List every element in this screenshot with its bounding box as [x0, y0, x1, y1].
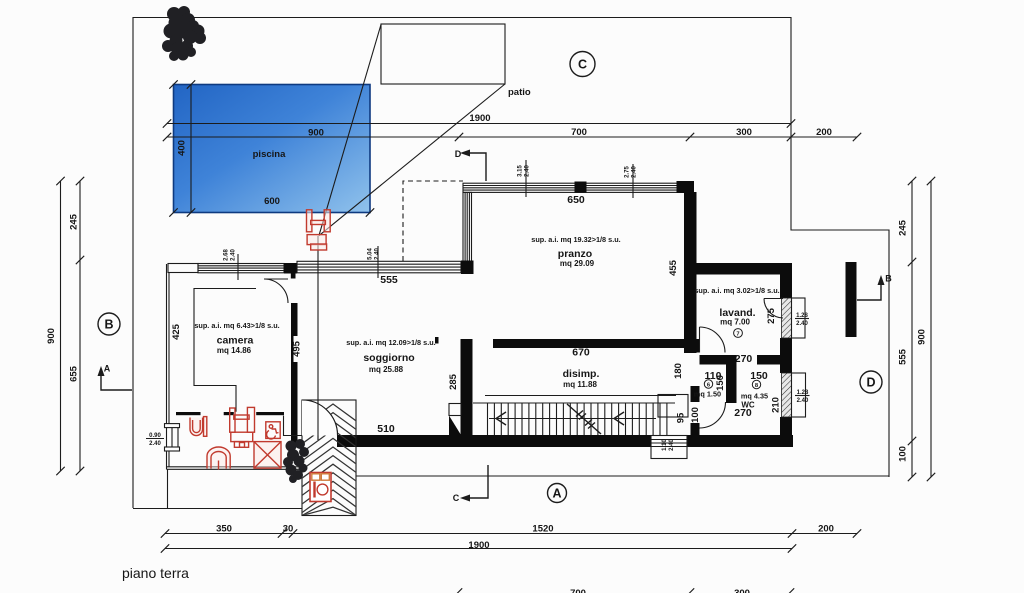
svg-text:piscina: piscina [253, 149, 286, 160]
svg-text:2.40: 2.40 [796, 321, 808, 327]
svg-text:1.10: 1.10 [662, 439, 668, 451]
svg-text:0.90: 0.90 [149, 433, 161, 439]
svg-text:900: 900 [308, 128, 324, 139]
svg-text:camera: camera [217, 335, 254, 347]
svg-text:2.40: 2.40 [231, 249, 237, 261]
svg-text:1.28: 1.28 [797, 390, 809, 396]
svg-text:300: 300 [734, 588, 750, 593]
svg-text:1520: 1520 [532, 524, 553, 535]
svg-text:C: C [453, 493, 460, 503]
svg-text:2.40: 2.40 [525, 165, 531, 177]
svg-text:30: 30 [283, 524, 294, 535]
svg-text:150: 150 [750, 370, 768, 382]
svg-text:150: 150 [715, 375, 726, 391]
svg-text:B: B [104, 318, 113, 332]
svg-text:2.68: 2.68 [224, 249, 230, 261]
svg-text:285: 285 [448, 373, 459, 390]
svg-text:100: 100 [898, 446, 909, 462]
svg-text:495: 495 [292, 340, 303, 357]
svg-text:2.40: 2.40 [669, 439, 675, 451]
svg-text:275: 275 [766, 307, 777, 324]
svg-text:655: 655 [69, 365, 80, 382]
svg-text:510: 510 [377, 423, 395, 435]
svg-text:sup. a.i. mq 19.32>1/8 s.u.: sup. a.i. mq 19.32>1/8 s.u. [531, 235, 620, 244]
svg-text:180: 180 [673, 363, 684, 379]
svg-text:disimp.: disimp. [563, 368, 600, 380]
svg-text:7: 7 [736, 331, 739, 337]
svg-text:200: 200 [818, 524, 834, 535]
svg-text:300: 300 [736, 127, 752, 138]
svg-text:650: 650 [567, 194, 585, 206]
svg-text:3.15: 3.15 [518, 165, 524, 177]
svg-text:95: 95 [676, 412, 687, 423]
svg-text:900: 900 [46, 328, 57, 344]
svg-text:555: 555 [380, 274, 398, 286]
svg-text:1900: 1900 [469, 113, 490, 124]
svg-text:mq 29.09: mq 29.09 [560, 259, 595, 268]
svg-text:200: 200 [816, 127, 832, 138]
svg-text:mq 11.88: mq 11.88 [563, 380, 597, 389]
svg-text:A: A [552, 487, 561, 501]
svg-text:sup. a.i. mq 12.09>1/8 s.u.: sup. a.i. mq 12.09>1/8 s.u. [346, 338, 435, 347]
svg-text:5.04: 5.04 [368, 248, 374, 260]
svg-text:2.40: 2.40 [797, 398, 809, 404]
svg-text:245: 245 [898, 219, 909, 236]
svg-text:mq 4.35: mq 4.35 [741, 392, 768, 401]
svg-text:sup. a.i. mq 3.02>1/8 s.u.: sup. a.i. mq 3.02>1/8 s.u. [694, 286, 779, 295]
svg-text:2.40: 2.40 [149, 441, 161, 447]
svg-text:555: 555 [898, 348, 909, 365]
svg-text:425: 425 [171, 323, 182, 340]
svg-text:700: 700 [571, 127, 587, 138]
svg-text:soggiorno: soggiorno [363, 352, 414, 364]
svg-text:1900: 1900 [468, 540, 489, 551]
svg-text:patio: patio [508, 87, 531, 98]
svg-text:270: 270 [735, 353, 753, 365]
svg-text:mq 14.86: mq 14.86 [217, 346, 252, 355]
svg-text:sup. a.i. mq 6.43>1/8 s.u.: sup. a.i. mq 6.43>1/8 s.u. [194, 321, 279, 330]
svg-text:270: 270 [734, 407, 752, 419]
svg-text:400: 400 [177, 140, 188, 156]
svg-text:2.40: 2.40 [375, 248, 381, 260]
svg-text:670: 670 [572, 347, 590, 359]
svg-text:2.75: 2.75 [625, 166, 631, 178]
svg-text:1.28: 1.28 [796, 313, 808, 319]
svg-text:600: 600 [264, 196, 280, 207]
svg-text:700: 700 [570, 588, 586, 593]
svg-text:A: A [104, 364, 111, 374]
svg-text:245: 245 [69, 213, 80, 230]
svg-text:D: D [455, 149, 462, 159]
svg-text:mq 7.00: mq 7.00 [720, 318, 750, 327]
svg-text:455: 455 [668, 259, 679, 276]
svg-text:piano terra: piano terra [122, 565, 189, 581]
svg-text:900: 900 [917, 329, 928, 345]
svg-text:100: 100 [690, 407, 701, 423]
svg-text:mq 25.88: mq 25.88 [369, 365, 404, 374]
svg-text:350: 350 [216, 524, 232, 535]
svg-text:D: D [866, 376, 875, 390]
svg-text:C: C [578, 58, 587, 72]
svg-text:B: B [885, 274, 892, 284]
svg-text:210: 210 [771, 397, 782, 413]
svg-text:2.40: 2.40 [632, 166, 638, 178]
